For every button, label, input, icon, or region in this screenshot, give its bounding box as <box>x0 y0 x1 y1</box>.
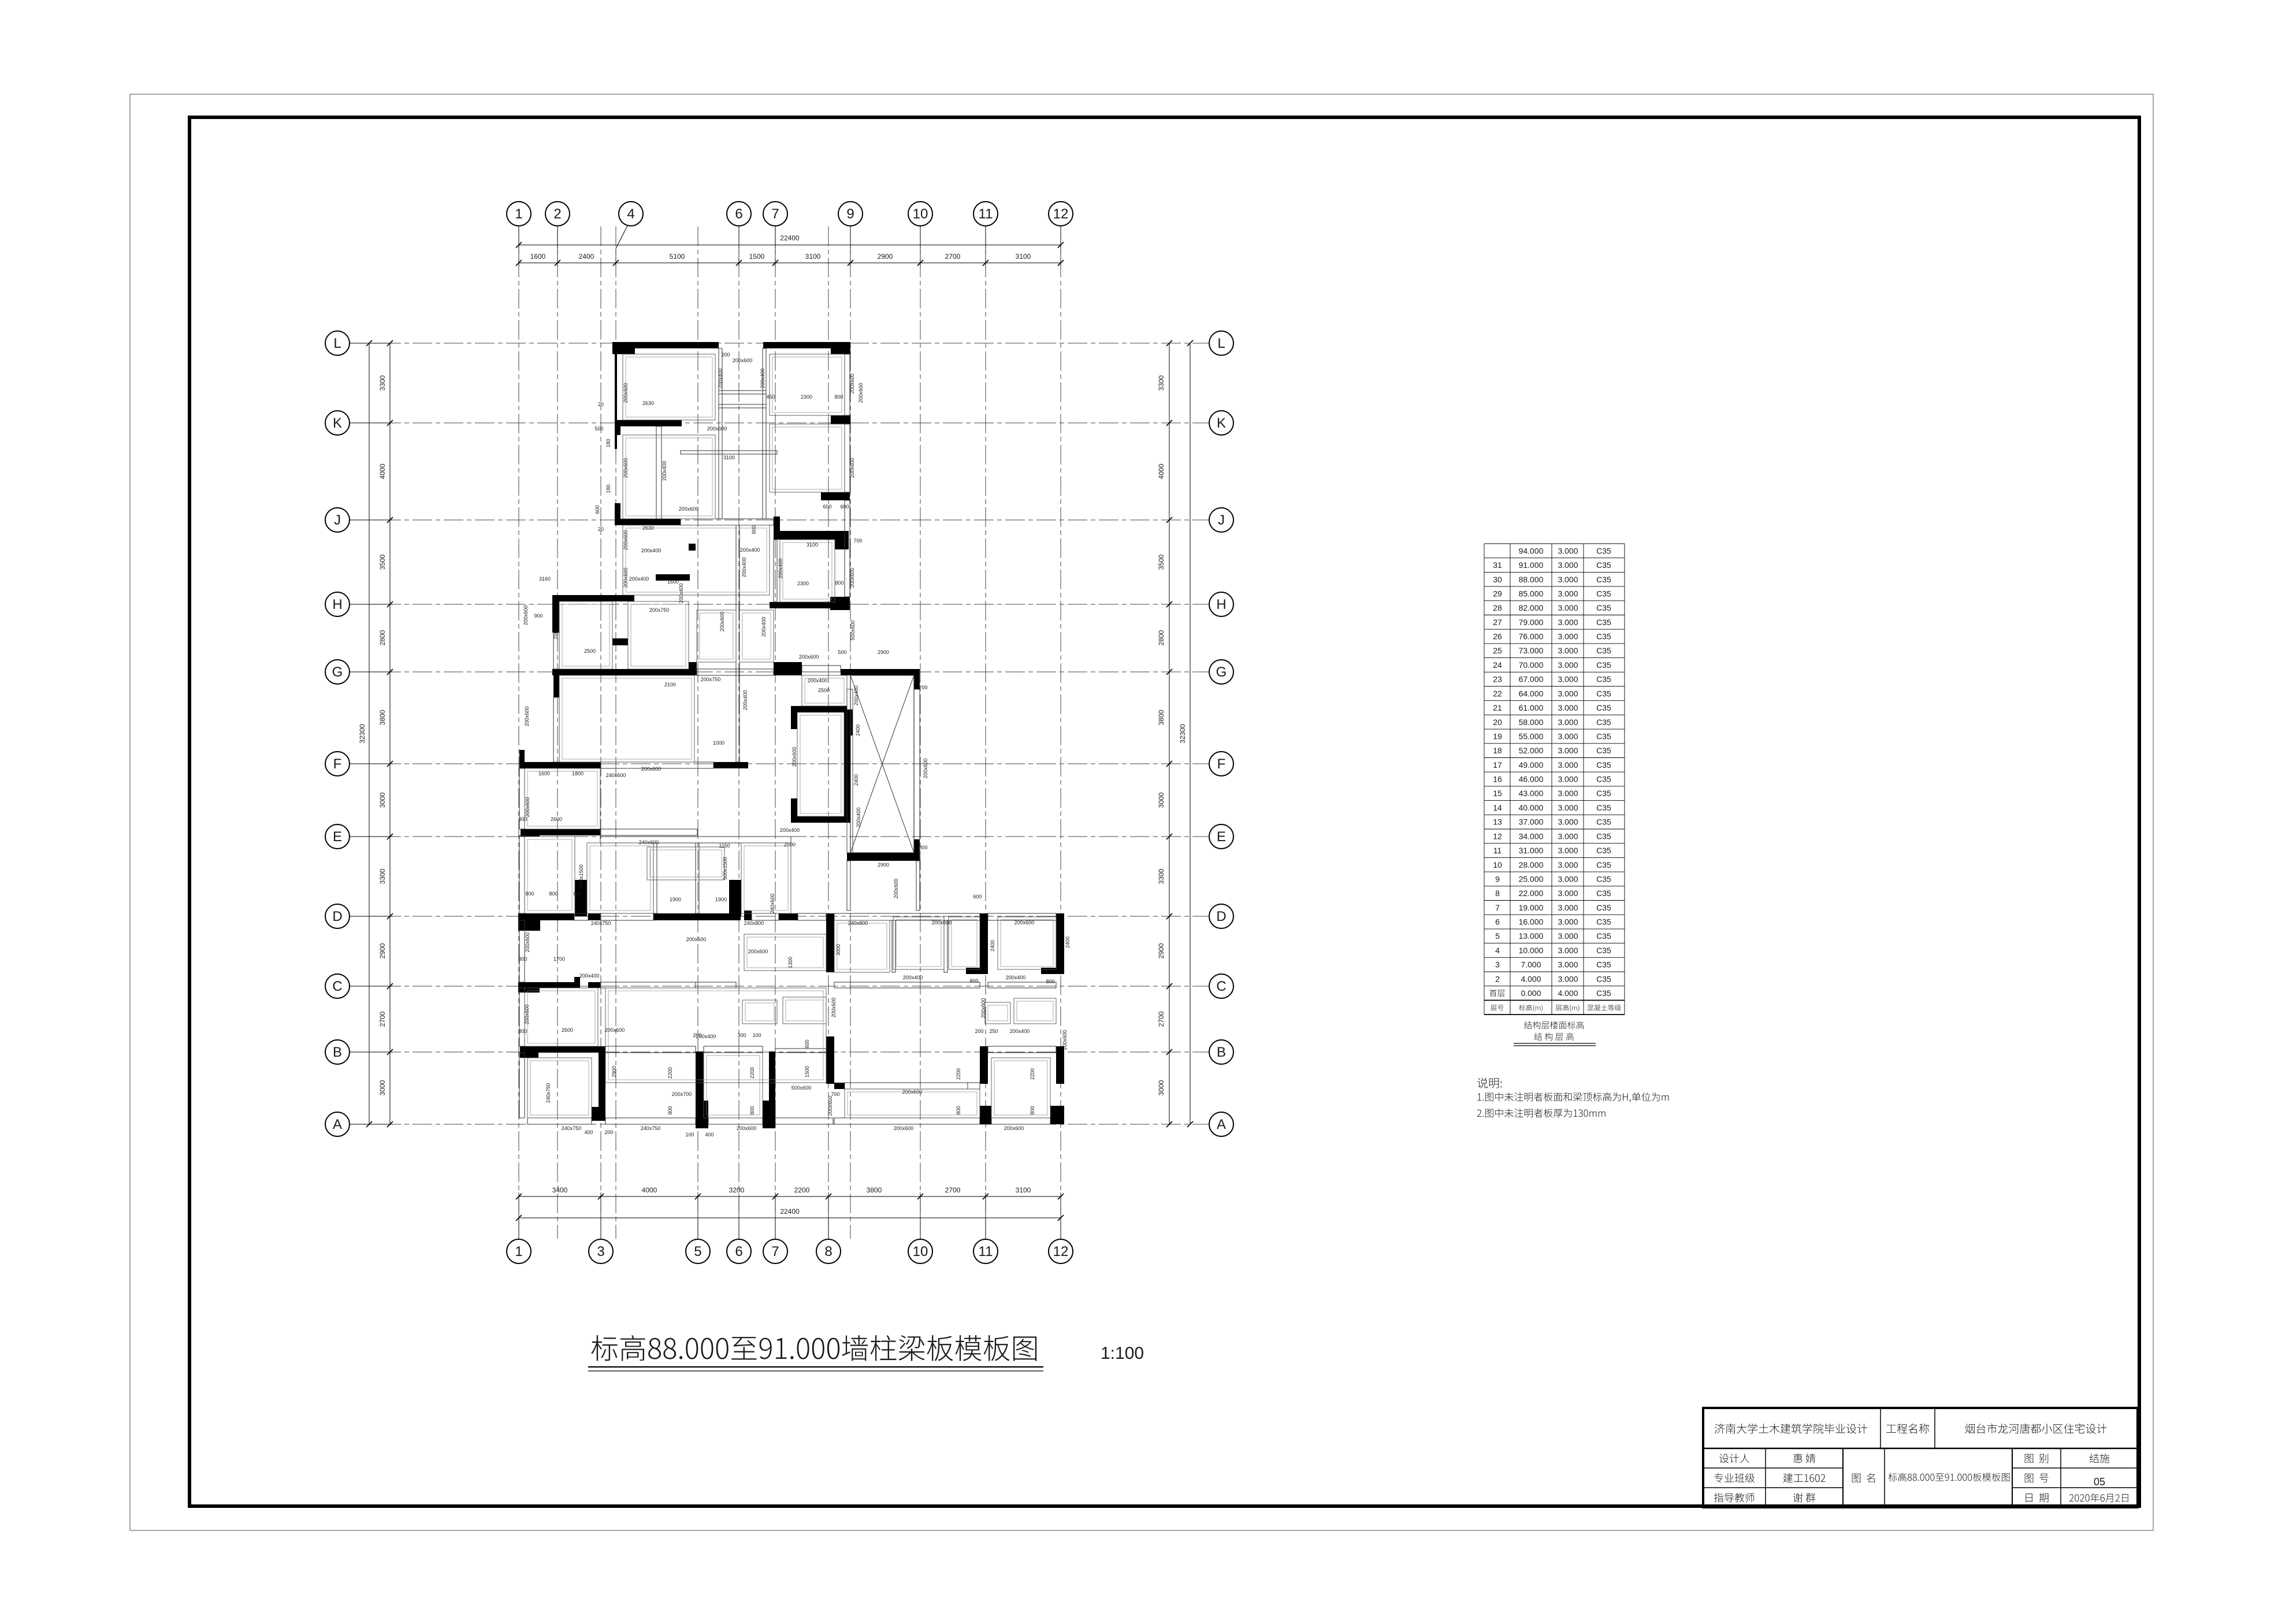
svg-text:C35: C35 <box>1596 974 1611 983</box>
svg-text:40.000: 40.000 <box>1519 803 1544 812</box>
svg-text:500x600: 500x600 <box>850 620 856 641</box>
svg-text:200x600: 200x600 <box>623 530 629 551</box>
svg-text:3: 3 <box>1495 960 1500 969</box>
svg-text:300: 300 <box>737 1032 746 1038</box>
svg-text:C35: C35 <box>1596 718 1611 727</box>
svg-text:5: 5 <box>1495 931 1500 941</box>
svg-text:32300: 32300 <box>1179 724 1187 744</box>
svg-text:2400: 2400 <box>855 724 861 736</box>
svg-text:H: H <box>332 597 342 612</box>
svg-text:200x600: 200x600 <box>831 998 837 1018</box>
svg-text:0.000: 0.000 <box>1521 988 1541 998</box>
svg-text:200x400: 200x400 <box>1006 975 1026 980</box>
svg-text:10: 10 <box>913 1244 928 1259</box>
svg-text:2700: 2700 <box>1157 1011 1165 1027</box>
svg-text:8: 8 <box>824 1244 832 1259</box>
svg-text:1600: 1600 <box>667 579 679 585</box>
svg-text:C35: C35 <box>1596 946 1611 955</box>
svg-text:3800: 3800 <box>1157 709 1165 725</box>
svg-text:C35: C35 <box>1596 603 1611 612</box>
svg-text:200x400: 200x400 <box>778 559 783 579</box>
svg-text:30: 30 <box>1493 575 1502 584</box>
svg-text:3.000: 3.000 <box>1558 660 1578 670</box>
svg-text:500x1500: 500x1500 <box>722 857 728 880</box>
svg-text:2700: 2700 <box>378 1011 386 1027</box>
svg-text:25: 25 <box>1493 646 1502 655</box>
svg-text:200x600: 200x600 <box>623 458 629 478</box>
svg-text:2300: 2300 <box>801 394 812 400</box>
svg-text:3: 3 <box>597 1244 604 1259</box>
svg-text:23: 23 <box>1493 675 1502 684</box>
svg-text:1300: 1300 <box>787 957 793 968</box>
svg-text:200x400: 200x400 <box>718 369 723 389</box>
svg-text:200x600: 200x600 <box>523 605 529 626</box>
svg-text:4: 4 <box>627 206 634 222</box>
svg-text:1500: 1500 <box>749 252 765 261</box>
svg-text:12: 12 <box>1493 831 1502 841</box>
svg-text:200x400: 200x400 <box>760 369 765 389</box>
svg-text:3.000: 3.000 <box>1558 646 1578 655</box>
svg-text:2: 2 <box>1495 974 1500 983</box>
svg-text:240x750: 240x750 <box>641 1125 661 1131</box>
svg-text:1800: 1800 <box>572 771 584 776</box>
svg-text:C35: C35 <box>1596 846 1611 855</box>
svg-text:3500: 3500 <box>378 554 386 570</box>
svg-text:200x600: 200x600 <box>605 1027 625 1033</box>
svg-text:K: K <box>1217 415 1226 431</box>
svg-text:600: 600 <box>823 504 831 510</box>
svg-text:4.000: 4.000 <box>1558 988 1578 998</box>
svg-text:22400: 22400 <box>780 234 800 242</box>
svg-text:3.000: 3.000 <box>1558 817 1578 827</box>
svg-text:C35: C35 <box>1596 660 1611 670</box>
svg-text:200x600: 200x600 <box>894 1125 914 1131</box>
svg-text:C35: C35 <box>1596 703 1611 712</box>
svg-text:1: 1 <box>515 1244 522 1259</box>
svg-text:D: D <box>1216 909 1226 924</box>
svg-text:3.000: 3.000 <box>1558 589 1578 599</box>
svg-text:2400: 2400 <box>579 252 594 261</box>
svg-text:3000: 3000 <box>1157 792 1165 808</box>
svg-text:200x600: 200x600 <box>980 998 986 1019</box>
svg-text:200x600: 200x600 <box>733 358 753 363</box>
svg-text:C35: C35 <box>1596 560 1611 570</box>
svg-text:3100: 3100 <box>723 455 735 460</box>
svg-text:800: 800 <box>667 1106 673 1114</box>
svg-text:3200: 3200 <box>729 1186 745 1194</box>
svg-text:3.000: 3.000 <box>1558 760 1578 770</box>
svg-text:800: 800 <box>573 891 582 897</box>
svg-text:200x600: 200x600 <box>641 766 661 772</box>
svg-text:C: C <box>332 979 342 994</box>
svg-text:200x400: 200x400 <box>741 558 747 578</box>
svg-text:12: 12 <box>1053 206 1069 222</box>
svg-text:C35: C35 <box>1596 589 1611 599</box>
svg-text:21: 21 <box>1493 703 1502 712</box>
svg-text:17: 17 <box>1493 760 1502 770</box>
svg-text:C35: C35 <box>1596 675 1611 684</box>
svg-text:3.000: 3.000 <box>1558 946 1578 955</box>
svg-text:11: 11 <box>979 206 993 222</box>
svg-text:2500: 2500 <box>584 648 596 654</box>
svg-text:800: 800 <box>518 956 527 962</box>
svg-text:C35: C35 <box>1596 546 1611 555</box>
svg-text:C35: C35 <box>1596 789 1611 798</box>
svg-text:200x400: 200x400 <box>903 975 923 980</box>
svg-text:3.000: 3.000 <box>1558 689 1578 698</box>
svg-text:800: 800 <box>1030 1106 1035 1114</box>
svg-text:2800: 2800 <box>378 630 386 645</box>
svg-text:2400: 2400 <box>853 774 859 786</box>
svg-text:3400: 3400 <box>552 1186 568 1194</box>
svg-text:200x600: 200x600 <box>858 383 864 403</box>
svg-text:C35: C35 <box>1596 618 1611 627</box>
svg-text:3300: 3300 <box>378 868 386 884</box>
svg-text:2900: 2900 <box>1157 943 1165 958</box>
svg-text:79.000: 79.000 <box>1519 618 1544 627</box>
svg-text:B: B <box>1217 1045 1226 1060</box>
svg-text:18: 18 <box>1493 746 1502 755</box>
svg-text:1150: 1150 <box>719 843 730 849</box>
svg-text:200x400: 200x400 <box>856 808 861 828</box>
svg-text:200x600: 200x600 <box>932 920 952 926</box>
svg-text:600: 600 <box>840 504 849 510</box>
svg-text:200x400: 200x400 <box>808 678 828 683</box>
svg-text:3160: 3160 <box>539 576 551 582</box>
svg-text:2900: 2900 <box>878 252 893 261</box>
svg-text:3.000: 3.000 <box>1558 874 1578 883</box>
svg-text:200x600: 200x600 <box>686 937 707 942</box>
svg-text:46.000: 46.000 <box>1519 775 1544 784</box>
svg-text:22.000: 22.000 <box>1519 889 1544 898</box>
svg-text:200x600: 200x600 <box>799 654 819 660</box>
svg-text:6: 6 <box>735 206 742 222</box>
svg-text:2900: 2900 <box>611 1066 617 1077</box>
svg-text:600: 600 <box>804 1039 810 1048</box>
svg-text:200x600: 200x600 <box>748 949 768 954</box>
svg-text:900: 900 <box>534 613 542 619</box>
svg-text:K: K <box>333 415 342 431</box>
svg-text:3000: 3000 <box>1157 1080 1165 1095</box>
svg-text:1:100: 1:100 <box>1101 1344 1144 1363</box>
svg-text:2500: 2500 <box>818 687 830 693</box>
svg-text:200x400: 200x400 <box>1010 1028 1030 1034</box>
svg-text:800: 800 <box>956 1106 961 1114</box>
svg-text:16.000: 16.000 <box>1519 917 1544 927</box>
svg-text:5: 5 <box>694 1244 701 1259</box>
svg-text:200x600: 200x600 <box>623 383 629 403</box>
svg-text:3.000: 3.000 <box>1558 718 1578 727</box>
svg-text:10.000: 10.000 <box>1519 946 1544 955</box>
svg-text:200: 200 <box>553 630 559 639</box>
svg-text:200x600: 200x600 <box>849 568 855 588</box>
svg-text:24: 24 <box>1493 660 1502 670</box>
svg-text:C35: C35 <box>1596 575 1611 584</box>
svg-text:200x600: 200x600 <box>893 879 899 899</box>
svg-text:2700: 2700 <box>945 252 961 261</box>
svg-text:4: 4 <box>1495 946 1500 955</box>
svg-text:31: 31 <box>1493 560 1502 570</box>
svg-text:1: 1 <box>515 206 522 222</box>
svg-text:1900: 1900 <box>670 897 681 902</box>
svg-text:2200: 2200 <box>667 1067 673 1079</box>
svg-text:5100: 5100 <box>670 252 685 261</box>
svg-text:200x600: 200x600 <box>525 932 530 953</box>
svg-text:L: L <box>1217 336 1225 351</box>
svg-text:3.000: 3.000 <box>1558 575 1578 584</box>
svg-text:600: 600 <box>973 894 982 900</box>
svg-text:85.000: 85.000 <box>1519 589 1544 599</box>
svg-text:240x750: 240x750 <box>591 920 611 926</box>
svg-text:2200: 2200 <box>1030 1068 1035 1080</box>
svg-text:9: 9 <box>846 206 854 222</box>
svg-text:800: 800 <box>525 891 534 897</box>
svg-text:4000: 4000 <box>1157 463 1165 479</box>
svg-text:2800: 2800 <box>1157 630 1165 645</box>
svg-text:A: A <box>1217 1117 1226 1132</box>
svg-text:200x600: 200x600 <box>1014 920 1035 926</box>
svg-text:200x700: 200x700 <box>672 1091 692 1097</box>
svg-text:05: 05 <box>2094 1476 2105 1488</box>
svg-text:16: 16 <box>1493 775 1502 784</box>
svg-text:14: 14 <box>1493 803 1502 812</box>
svg-text:2400: 2400 <box>1065 937 1071 948</box>
svg-text:C35: C35 <box>1596 775 1611 784</box>
svg-text:55.000: 55.000 <box>1519 731 1544 741</box>
svg-text:200x400: 200x400 <box>641 548 661 553</box>
svg-text:3.000: 3.000 <box>1558 917 1578 927</box>
svg-text:200x600: 200x600 <box>1062 1030 1068 1050</box>
svg-text:27: 27 <box>1493 618 1502 627</box>
svg-text:600: 600 <box>594 505 600 514</box>
svg-text:200x600: 200x600 <box>923 759 928 779</box>
svg-text:J: J <box>334 512 341 528</box>
svg-text:11: 11 <box>1493 846 1502 855</box>
svg-text:3.000: 3.000 <box>1558 831 1578 841</box>
svg-text:C35: C35 <box>1596 646 1611 655</box>
svg-text:800: 800 <box>969 978 978 984</box>
svg-text:800: 800 <box>834 394 843 400</box>
svg-text:200x600: 200x600 <box>1004 1125 1024 1131</box>
svg-text:3.000: 3.000 <box>1558 618 1578 627</box>
svg-text:500x600: 500x600 <box>791 1085 812 1091</box>
svg-text:1500: 1500 <box>804 1066 810 1077</box>
svg-text:2200: 2200 <box>749 1067 755 1079</box>
svg-text:240x600: 240x600 <box>639 839 659 845</box>
svg-text:3.000: 3.000 <box>1558 703 1578 712</box>
svg-text:4000: 4000 <box>378 463 386 479</box>
svg-text:E: E <box>333 829 342 845</box>
svg-text:3.000: 3.000 <box>1558 860 1578 869</box>
svg-text:240x600: 240x600 <box>606 772 626 778</box>
svg-text:3300: 3300 <box>1157 375 1165 391</box>
svg-text:3.000: 3.000 <box>1558 746 1578 755</box>
svg-text:200x600: 200x600 <box>524 1005 530 1025</box>
svg-text:800: 800 <box>518 1028 527 1034</box>
svg-text:200: 200 <box>604 1129 613 1135</box>
svg-text:61.000: 61.000 <box>1519 703 1544 712</box>
svg-text:2700: 2700 <box>945 1186 961 1194</box>
svg-text:800: 800 <box>751 525 757 534</box>
svg-text:1000: 1000 <box>713 740 724 746</box>
svg-text:2300: 2300 <box>797 581 809 586</box>
svg-text:200x750: 200x750 <box>701 677 721 682</box>
svg-text:240x750: 240x750 <box>562 1125 582 1131</box>
svg-text:2200: 2200 <box>956 1068 961 1080</box>
svg-text:76.000: 76.000 <box>1519 632 1544 641</box>
svg-text:4.000: 4.000 <box>1521 974 1541 983</box>
svg-text:52.000: 52.000 <box>1519 746 1544 755</box>
svg-text:100: 100 <box>685 1132 694 1138</box>
svg-text:15: 15 <box>1493 789 1502 798</box>
svg-text:7.000: 7.000 <box>1521 960 1541 969</box>
svg-text:3500: 3500 <box>1157 554 1165 570</box>
svg-text:1700: 1700 <box>553 956 565 962</box>
svg-text:20: 20 <box>1493 718 1502 727</box>
svg-text:1600: 1600 <box>538 771 550 776</box>
svg-text:C35: C35 <box>1596 632 1611 641</box>
svg-text:800: 800 <box>1046 979 1054 984</box>
svg-text:C35: C35 <box>1596 903 1611 912</box>
svg-text:700: 700 <box>919 685 927 690</box>
svg-text:C35: C35 <box>1596 746 1611 755</box>
svg-text:3100: 3100 <box>807 542 818 548</box>
svg-text:C35: C35 <box>1596 831 1611 841</box>
svg-text:100: 100 <box>752 1032 761 1038</box>
svg-text:64.000: 64.000 <box>1519 689 1544 698</box>
svg-text:500: 500 <box>838 649 846 655</box>
svg-text:G: G <box>1216 664 1227 680</box>
svg-text:3800: 3800 <box>867 1186 882 1194</box>
svg-text:3100: 3100 <box>1016 1186 1031 1194</box>
svg-text:E: E <box>1217 829 1226 845</box>
svg-text:3.000: 3.000 <box>1558 675 1578 684</box>
svg-text:D: D <box>332 909 342 924</box>
svg-text:400: 400 <box>705 1132 713 1138</box>
svg-text:10: 10 <box>913 206 928 222</box>
svg-text:250: 250 <box>989 1028 998 1034</box>
svg-text:49.000: 49.000 <box>1519 760 1544 770</box>
svg-text:25.000: 25.000 <box>1519 874 1544 883</box>
svg-text:34.000: 34.000 <box>1519 831 1544 841</box>
svg-text:200x400: 200x400 <box>853 686 859 706</box>
svg-text:2600: 2600 <box>562 1027 573 1033</box>
svg-text:500: 500 <box>594 426 603 432</box>
svg-text:3100: 3100 <box>1016 252 1031 261</box>
svg-text:11: 11 <box>979 1244 993 1259</box>
svg-text:4000: 4000 <box>642 1186 657 1194</box>
svg-text:3.000: 3.000 <box>1558 632 1578 641</box>
svg-text:37.000: 37.000 <box>1519 817 1544 827</box>
svg-text:19.000: 19.000 <box>1519 903 1544 912</box>
svg-text:240x800: 240x800 <box>848 920 868 926</box>
svg-text:73.000: 73.000 <box>1519 646 1544 655</box>
svg-text:C35: C35 <box>1596 860 1611 869</box>
svg-text:3.000: 3.000 <box>1558 603 1578 612</box>
svg-text:200: 200 <box>693 1032 701 1038</box>
svg-text:C35: C35 <box>1596 889 1611 898</box>
svg-text:200x600: 200x600 <box>679 506 699 512</box>
svg-text:200x600: 200x600 <box>902 1089 923 1095</box>
svg-text:C35: C35 <box>1596 817 1611 827</box>
svg-text:C35: C35 <box>1596 917 1611 927</box>
svg-text:400: 400 <box>584 1129 593 1135</box>
svg-text:3300: 3300 <box>378 375 386 391</box>
svg-text:22: 22 <box>1493 689 1502 698</box>
svg-text:2900: 2900 <box>878 649 889 655</box>
svg-text:3000: 3000 <box>378 792 386 808</box>
svg-text:3.000: 3.000 <box>1558 731 1578 741</box>
svg-text:200x400: 200x400 <box>740 547 760 553</box>
svg-text:240x750: 240x750 <box>545 1083 551 1103</box>
svg-text:C35: C35 <box>1596 874 1611 883</box>
svg-text:200x600: 200x600 <box>525 797 530 817</box>
svg-text:C35: C35 <box>1596 760 1611 770</box>
svg-text:2900: 2900 <box>878 862 889 868</box>
svg-text:200: 200 <box>975 1028 983 1034</box>
svg-text:3.000: 3.000 <box>1558 789 1578 798</box>
svg-text:800: 800 <box>749 1106 755 1114</box>
svg-text:2500: 2500 <box>784 842 796 848</box>
svg-text:200x400: 200x400 <box>761 617 767 637</box>
svg-text:200x400: 200x400 <box>742 690 748 711</box>
svg-text:C35: C35 <box>1596 960 1611 969</box>
svg-text:3.000: 3.000 <box>1558 960 1578 969</box>
svg-text:22400: 22400 <box>780 1207 800 1216</box>
svg-text:200x600: 200x600 <box>719 612 725 632</box>
svg-text:L: L <box>333 336 341 351</box>
svg-text:3.000: 3.000 <box>1558 974 1578 983</box>
svg-text:8: 8 <box>1495 889 1500 898</box>
svg-text:F: F <box>1217 756 1226 772</box>
svg-text:43.000: 43.000 <box>1519 789 1544 798</box>
svg-text:7: 7 <box>771 1244 779 1259</box>
svg-text:200x400: 200x400 <box>780 827 800 833</box>
svg-text:2400: 2400 <box>990 940 995 952</box>
svg-text:200x600: 200x600 <box>849 374 855 394</box>
svg-text:2100: 2100 <box>664 682 676 687</box>
svg-text:800: 800 <box>549 891 558 897</box>
svg-text:500x1500: 500x1500 <box>578 864 584 887</box>
svg-text:7: 7 <box>771 206 779 222</box>
svg-text:G: G <box>332 664 343 680</box>
svg-text:3.000: 3.000 <box>1558 903 1578 912</box>
svg-text:700: 700 <box>853 538 862 544</box>
svg-text:31.000: 31.000 <box>1519 846 1544 855</box>
svg-text:28: 28 <box>1493 603 1502 612</box>
svg-text:2900: 2900 <box>378 943 386 958</box>
svg-text:3.000: 3.000 <box>1558 931 1578 941</box>
svg-text:H: H <box>1216 597 1226 612</box>
svg-text:2630: 2630 <box>642 525 654 531</box>
svg-text:200x600: 200x600 <box>791 747 797 767</box>
svg-text:1900: 1900 <box>715 897 727 902</box>
svg-text:10: 10 <box>1493 860 1502 869</box>
svg-text:26: 26 <box>1493 632 1502 641</box>
svg-text:A: A <box>333 1117 342 1132</box>
svg-text:2600: 2600 <box>551 816 562 822</box>
svg-text:200x750: 200x750 <box>649 607 670 613</box>
svg-text:3000: 3000 <box>835 944 841 956</box>
svg-text:200x600: 200x600 <box>524 707 530 727</box>
svg-text:240x800: 240x800 <box>744 920 764 926</box>
svg-text:67.000: 67.000 <box>1519 675 1544 684</box>
svg-text:200x400: 200x400 <box>629 576 649 582</box>
svg-text:6: 6 <box>735 1244 742 1259</box>
svg-text:200x400: 200x400 <box>661 461 667 481</box>
svg-text:180: 180 <box>605 438 611 447</box>
svg-text:94.000: 94.000 <box>1519 546 1544 555</box>
